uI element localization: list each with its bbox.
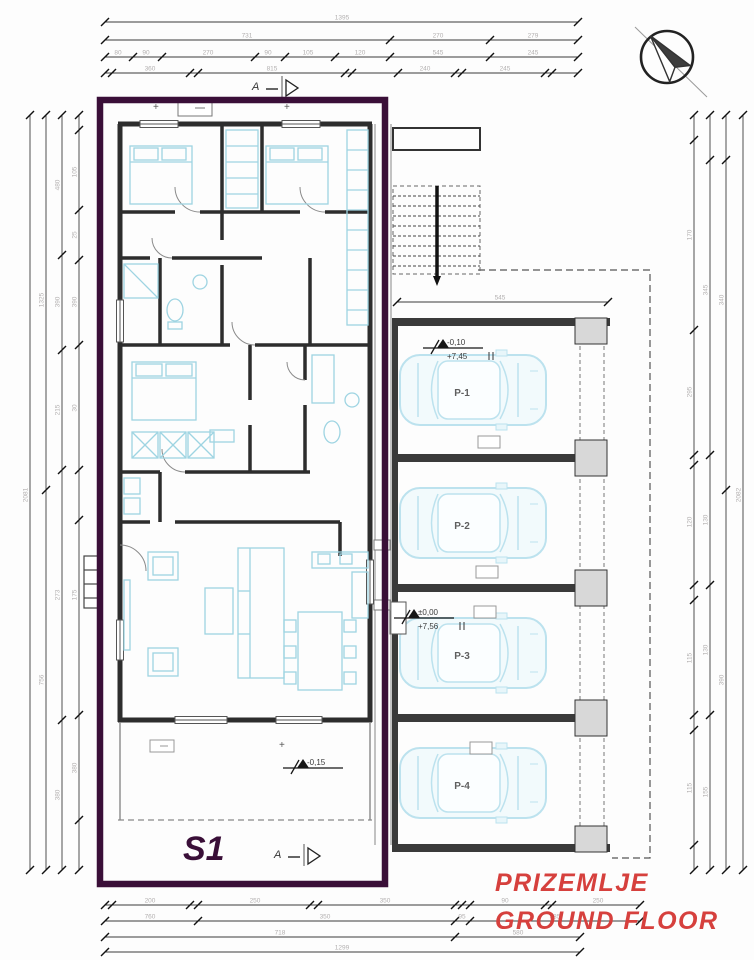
svg-text:250: 250 xyxy=(250,898,261,905)
title-croatian: PRIZEMLJE xyxy=(495,869,649,897)
svg-text:350: 350 xyxy=(380,898,391,905)
floor-plan-drawing: 1395731270279809027090105120545245360815… xyxy=(0,0,754,960)
section-letter: A xyxy=(273,849,281,861)
svg-text:250: 250 xyxy=(593,898,604,905)
svg-text:175: 175 xyxy=(72,589,79,600)
svg-text:25: 25 xyxy=(72,231,79,239)
svg-text:105: 105 xyxy=(72,166,79,177)
svg-text:270: 270 xyxy=(203,50,214,57)
car-icon xyxy=(400,743,546,823)
svg-text:130: 130 xyxy=(703,514,710,525)
svg-text:120: 120 xyxy=(355,50,366,57)
unit-s1-boundary xyxy=(100,100,385,884)
svg-text:815: 815 xyxy=(267,66,278,73)
external-stairs xyxy=(393,128,480,286)
elevation-value: +7,45 xyxy=(447,352,468,361)
car-icon xyxy=(400,350,546,430)
svg-text:95: 95 xyxy=(458,914,466,921)
parking-area: P-1 P-2 P-3 P-4 xyxy=(390,318,610,852)
svg-text:760: 760 xyxy=(145,914,156,921)
elevation-value: -0,15 xyxy=(307,758,326,767)
svg-text:1299: 1299 xyxy=(335,945,350,952)
pillar xyxy=(575,318,607,344)
svg-text:380: 380 xyxy=(72,762,79,773)
svg-text:115: 115 xyxy=(687,782,694,793)
svg-text:345: 345 xyxy=(703,284,710,295)
parking-bay-label-3: P-3 xyxy=(454,651,470,662)
svg-text:80: 80 xyxy=(114,50,122,57)
tag-box xyxy=(476,566,498,578)
section-letter: A xyxy=(251,81,259,93)
svg-text:90: 90 xyxy=(142,50,150,57)
furniture xyxy=(124,130,368,690)
parking-divider-wall xyxy=(397,714,577,722)
pillar xyxy=(575,570,607,606)
svg-text:240: 240 xyxy=(420,66,431,73)
svg-text:155: 155 xyxy=(703,786,710,797)
svg-text:273: 273 xyxy=(55,589,62,600)
svg-text:380: 380 xyxy=(55,789,62,800)
door-arc xyxy=(120,187,325,571)
svg-text:2082: 2082 xyxy=(736,487,743,502)
svg-text:120: 120 xyxy=(687,516,694,527)
svg-text:200: 200 xyxy=(145,898,156,905)
svg-text:1395: 1395 xyxy=(335,15,350,22)
svg-text:731: 731 xyxy=(242,33,253,40)
elevation-value: +7,56 xyxy=(418,622,439,631)
parking-bay-label-4: P-4 xyxy=(454,781,470,792)
svg-text:170: 170 xyxy=(687,229,694,240)
svg-text:115: 115 xyxy=(687,652,694,663)
pillar xyxy=(575,700,607,736)
svg-text:295: 295 xyxy=(687,386,694,397)
svg-text:480: 480 xyxy=(55,179,62,190)
terrace xyxy=(118,722,372,820)
svg-text:2081: 2081 xyxy=(23,487,30,502)
section-marker-bottom: A xyxy=(273,844,320,866)
pillar xyxy=(575,440,607,476)
tag-box xyxy=(470,742,492,754)
elevation-value: ±0,00 xyxy=(418,608,439,617)
svg-text:245: 245 xyxy=(528,50,539,57)
svg-text:30: 30 xyxy=(72,404,79,412)
svg-text:390: 390 xyxy=(719,674,726,685)
north-arrow-icon xyxy=(635,27,707,97)
survey-cross: + xyxy=(279,740,285,751)
section-marker-top: A xyxy=(251,76,298,98)
svg-text:545: 545 xyxy=(433,50,444,57)
parking-bay-label-1: P-1 xyxy=(454,388,470,399)
svg-text:270: 270 xyxy=(433,33,444,40)
floor-plan-sheet: 1395731270279809027090105120545245360815… xyxy=(0,0,754,960)
car-icon xyxy=(400,483,546,563)
svg-text:90: 90 xyxy=(264,50,272,57)
survey-cross: + xyxy=(284,102,290,113)
tag-box xyxy=(478,436,500,448)
svg-text:340: 340 xyxy=(719,294,726,305)
svg-text:360: 360 xyxy=(145,66,156,73)
pillar xyxy=(575,826,607,852)
svg-text:90: 90 xyxy=(501,898,509,905)
svg-text:245: 245 xyxy=(500,66,511,73)
unit-label: S1 xyxy=(183,830,225,868)
svg-text:390: 390 xyxy=(72,296,79,307)
title-english: GROUND FLOOR xyxy=(495,907,719,935)
svg-text:1325: 1325 xyxy=(39,292,46,307)
svg-text:215: 215 xyxy=(55,404,62,415)
svg-text:756: 756 xyxy=(39,674,46,685)
svg-text:105: 105 xyxy=(303,50,314,57)
tag-box xyxy=(474,606,496,618)
svg-text:390: 390 xyxy=(55,296,62,307)
elevation-value: -0,10 xyxy=(447,338,466,347)
svg-text:279: 279 xyxy=(528,33,539,40)
svg-text:545: 545 xyxy=(495,295,506,302)
svg-text:130: 130 xyxy=(703,644,710,655)
parking-bay-label-2: P-2 xyxy=(454,521,470,532)
svg-text:718: 718 xyxy=(275,930,286,937)
parking-divider-wall xyxy=(397,584,577,592)
parking-divider-wall xyxy=(397,454,577,462)
svg-text:350: 350 xyxy=(320,914,331,921)
survey-cross: + xyxy=(153,102,159,113)
